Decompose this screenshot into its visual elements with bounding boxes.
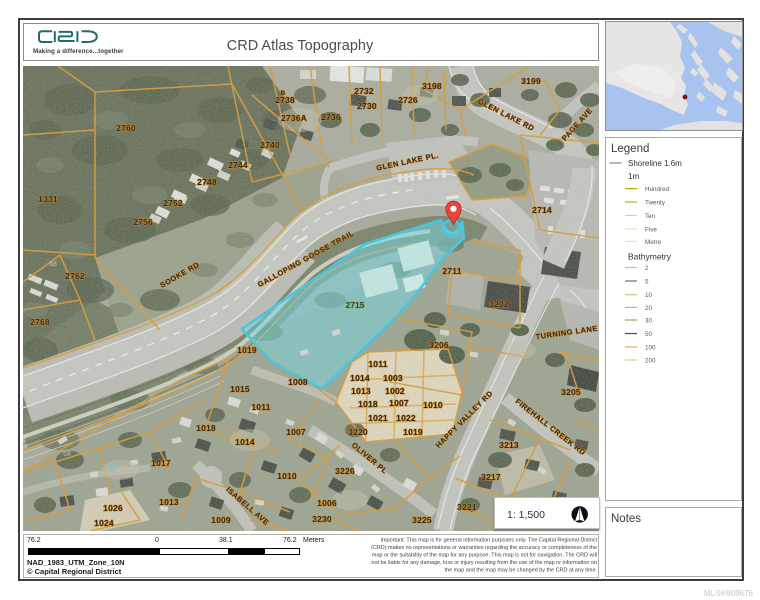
svg-text:2: 2 <box>645 265 649 272</box>
svg-text:200: 200 <box>645 358 656 365</box>
svg-text:3225: 3225 <box>412 515 432 525</box>
svg-text:2715: 2715 <box>346 300 365 310</box>
svg-text:1m: 1m <box>628 172 639 181</box>
svg-text:68: 68 <box>63 451 71 458</box>
svg-text:2736A: 2736A <box>281 113 307 123</box>
svg-text:2760: 2760 <box>116 123 136 133</box>
svg-text:1006: 1006 <box>317 498 337 508</box>
svg-text:2732: 2732 <box>354 86 374 96</box>
svg-text:3220: 3220 <box>348 427 368 437</box>
svg-text:3226: 3226 <box>335 466 355 476</box>
svg-text:1002: 1002 <box>385 386 405 396</box>
svg-text:1014: 1014 <box>350 373 370 383</box>
svg-text:2748: 2748 <box>197 177 217 187</box>
svg-text:1017: 1017 <box>151 458 171 468</box>
svg-text:1018: 1018 <box>358 399 378 409</box>
svg-text:10: 10 <box>645 292 653 299</box>
svg-text:1008: 1008 <box>288 377 308 387</box>
svg-text:2730: 2730 <box>357 101 377 111</box>
svg-text:2768: 2768 <box>30 317 50 327</box>
svg-text:1022: 1022 <box>396 413 416 423</box>
svg-text:1003: 1003 <box>383 373 403 383</box>
svg-text:Bathymetry: Bathymetry <box>628 252 672 262</box>
svg-text:2738: 2738 <box>275 95 295 105</box>
svg-text:1014: 1014 <box>235 437 255 447</box>
svg-text:1011: 1011 <box>368 359 387 369</box>
svg-text:3205: 3205 <box>561 387 581 397</box>
svg-text:1007: 1007 <box>389 398 409 408</box>
svg-text:1011: 1011 <box>251 402 270 412</box>
svg-text:5: 5 <box>645 279 649 286</box>
svg-text:1010: 1010 <box>277 471 297 481</box>
svg-text:Five: Five <box>645 226 657 233</box>
svg-text:2711: 2711 <box>442 266 461 276</box>
svg-text:Twenty: Twenty <box>645 200 666 207</box>
svg-text:3217: 3217 <box>481 472 501 482</box>
svg-text:3213: 3213 <box>499 440 519 450</box>
svg-text:50: 50 <box>645 331 653 338</box>
svg-text:1021: 1021 <box>368 413 388 423</box>
svg-text:2714: 2714 <box>532 205 552 215</box>
svg-text:2762: 2762 <box>65 271 85 281</box>
svg-text:1018: 1018 <box>196 423 216 433</box>
svg-text:3199: 3199 <box>521 76 541 86</box>
svg-text:2744: 2744 <box>228 160 248 170</box>
svg-text:1010: 1010 <box>423 400 443 410</box>
svg-text:3206: 3206 <box>429 340 449 350</box>
svg-text:1019: 1019 <box>237 345 257 355</box>
svg-text:Metre: Metre <box>645 239 662 246</box>
svg-text:1026: 1026 <box>103 503 123 513</box>
svg-text:1024: 1024 <box>94 518 114 528</box>
svg-text:2756: 2756 <box>133 217 153 227</box>
svg-text:2726: 2726 <box>398 95 418 105</box>
svg-text:1015: 1015 <box>230 384 250 394</box>
svg-text:2736: 2736 <box>321 112 341 122</box>
svg-text:Ten: Ten <box>645 213 656 220</box>
svg-text:3198: 3198 <box>422 81 442 91</box>
svg-text:1013: 1013 <box>351 386 371 396</box>
svg-text:3221: 3221 <box>457 502 477 512</box>
svg-text:1019: 1019 <box>403 427 423 437</box>
svg-text:1009: 1009 <box>211 515 231 525</box>
svg-text:1007: 1007 <box>286 427 306 437</box>
svg-text:Hundred: Hundred <box>645 186 670 193</box>
svg-text:68: 68 <box>49 261 57 268</box>
svg-text:2740: 2740 <box>260 140 280 150</box>
svg-text:2752: 2752 <box>163 198 183 208</box>
svg-text:1013: 1013 <box>159 497 179 507</box>
svg-text:3230: 3230 <box>312 514 332 524</box>
svg-text:1331: 1331 <box>38 194 58 204</box>
svg-text:20: 20 <box>645 305 653 312</box>
svg-text:30: 30 <box>645 318 653 325</box>
svg-text:3202: 3202 <box>489 299 509 309</box>
svg-text:Shoreline 1.6m: Shoreline 1.6m <box>628 159 682 168</box>
svg-text:100: 100 <box>645 345 656 352</box>
